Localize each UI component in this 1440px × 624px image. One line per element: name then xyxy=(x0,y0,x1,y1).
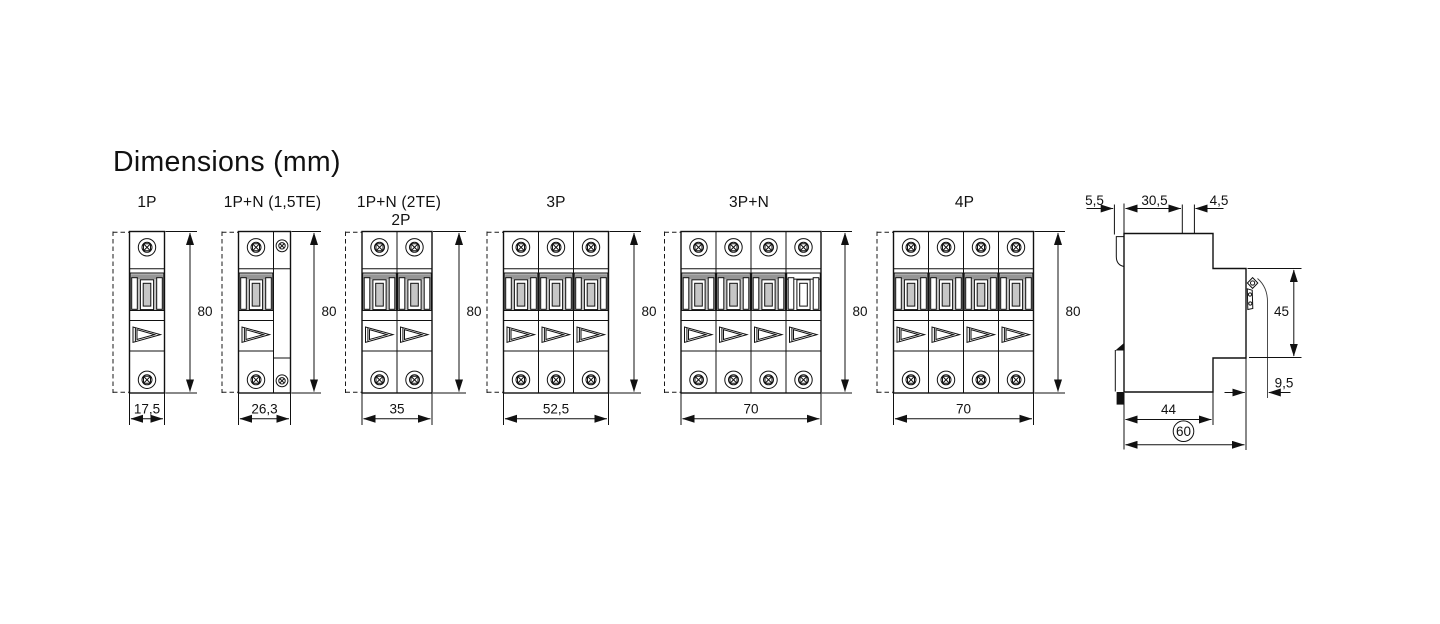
dim-front-tab-depth: 4,5 xyxy=(1210,193,1229,208)
front-view-2p: 1P+N (2TE) 2P 80 35 xyxy=(346,194,482,425)
dim-total-depth: 60 xyxy=(1176,424,1191,439)
height-dimension: 80 xyxy=(822,232,868,394)
din-rail-dashed-outline xyxy=(222,232,239,394)
din-rail-dashed-outline xyxy=(877,232,894,394)
breaker-body-outline xyxy=(239,232,291,394)
din-rail-dashed-outline xyxy=(346,232,363,394)
dim-clip-lever-offset: 9,5 xyxy=(1275,376,1294,391)
total-depth-dimension: 60 xyxy=(1126,359,1247,451)
dimension-drawing: Dimensions (mm) 1P 80 17,5 xyxy=(0,0,1440,624)
view-label-1p-n-2te: 1P+N (2TE) xyxy=(357,194,441,211)
width-dimension: 17,5 xyxy=(130,393,165,425)
width-dim-value: 70 xyxy=(956,402,971,417)
width-dimension: 70 xyxy=(681,393,821,425)
width-dim-value: 70 xyxy=(743,402,758,417)
terminal-clip-lever xyxy=(1247,278,1258,310)
view-label-3p: 3P xyxy=(546,194,565,211)
view-label-1p-n-1-5te: 1P+N (1,5TE) xyxy=(224,194,322,211)
din-clip xyxy=(1115,343,1124,405)
din-rail-dashed-outline xyxy=(665,232,682,394)
side-profile-outline xyxy=(1124,234,1246,393)
height-dim-value: 80 xyxy=(1066,304,1081,319)
height-dimension: 80 xyxy=(166,232,213,394)
front-view-1p-n-1-5te: 1P+N (1,5TE) 80 26,3 xyxy=(222,194,337,425)
height-dim-value: 80 xyxy=(467,304,482,319)
dim-rail-hook-depth: 5,5 xyxy=(1085,193,1104,208)
dim-base-depth: 44 xyxy=(1161,402,1177,417)
height-dimension: 80 xyxy=(292,232,337,394)
front-view-3p: 3P 80 52,5 xyxy=(487,194,657,425)
width-dimension: 35 xyxy=(362,393,432,425)
view-label-3p-n: 3P+N xyxy=(729,194,769,211)
dim-upper-body-depth: 30,5 xyxy=(1141,193,1167,208)
dimension-drawing-page: Dimensions (mm) 1P 80 17,5 xyxy=(0,0,1440,624)
top-dimensions: 5,5 30,5 4,5 xyxy=(1085,193,1228,235)
height-dim-value: 80 xyxy=(198,304,213,319)
view-label-4p: 4P xyxy=(955,194,974,211)
dim-front-height: 45 xyxy=(1274,304,1289,319)
side-view: 5,5 30,5 4,5 45 9,5 44 60 xyxy=(1085,193,1301,450)
height-dimension: 80 xyxy=(433,232,482,394)
width-dimension: 70 xyxy=(894,393,1034,425)
front-view-4p: 4P 80 70 xyxy=(877,194,1081,425)
front-view-1p: 1P 80 17,5 xyxy=(113,194,213,425)
din-rail-dashed-outline xyxy=(113,232,130,394)
width-dim-value: 26,3 xyxy=(251,402,277,417)
lever-swing-arc xyxy=(1258,279,1268,399)
width-dim-value: 35 xyxy=(389,402,404,417)
base-depth-dimension: 44 xyxy=(1124,393,1213,450)
width-dim-value: 52,5 xyxy=(543,402,569,417)
height-dim-value: 80 xyxy=(853,304,868,319)
clip-lever-offset-dimension: 9,5 xyxy=(1225,376,1294,393)
width-dimension: 26,3 xyxy=(239,393,291,425)
front-view-3p-n: 3P+N 80 70 xyxy=(665,194,868,425)
page-title: Dimensions (mm) xyxy=(113,146,341,178)
din-rail-hook xyxy=(1116,237,1124,267)
view-label-2p: 2P xyxy=(391,212,410,229)
height-dim-value: 80 xyxy=(322,304,337,319)
width-dimension: 52,5 xyxy=(504,393,609,425)
height-dimension: 80 xyxy=(1035,232,1081,394)
width-dim-value: 17,5 xyxy=(134,402,160,417)
height-dim-value: 80 xyxy=(642,304,657,319)
height-dimension: 80 xyxy=(610,232,657,394)
din-rail-dashed-outline xyxy=(487,232,504,394)
view-label-1p: 1P xyxy=(137,194,156,211)
